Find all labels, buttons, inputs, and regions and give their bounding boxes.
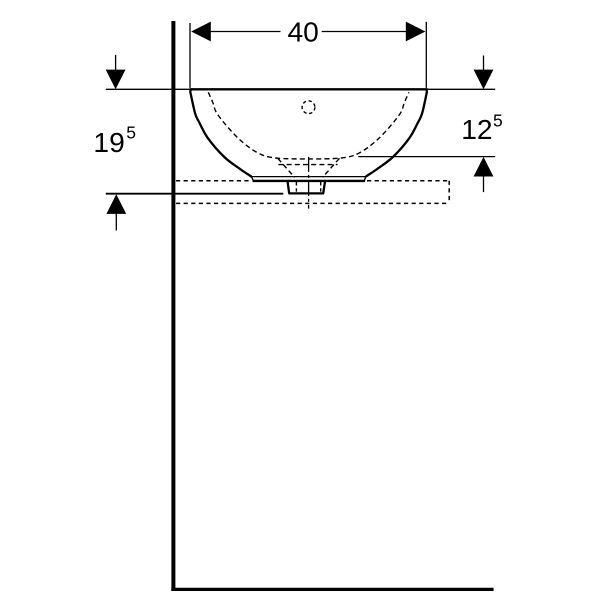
svg-text:19: 19	[93, 126, 124, 158]
svg-text:5: 5	[493, 111, 503, 131]
svg-text:5: 5	[126, 123, 136, 143]
svg-text:12: 12	[461, 113, 492, 145]
svg-text:40: 40	[288, 16, 319, 48]
